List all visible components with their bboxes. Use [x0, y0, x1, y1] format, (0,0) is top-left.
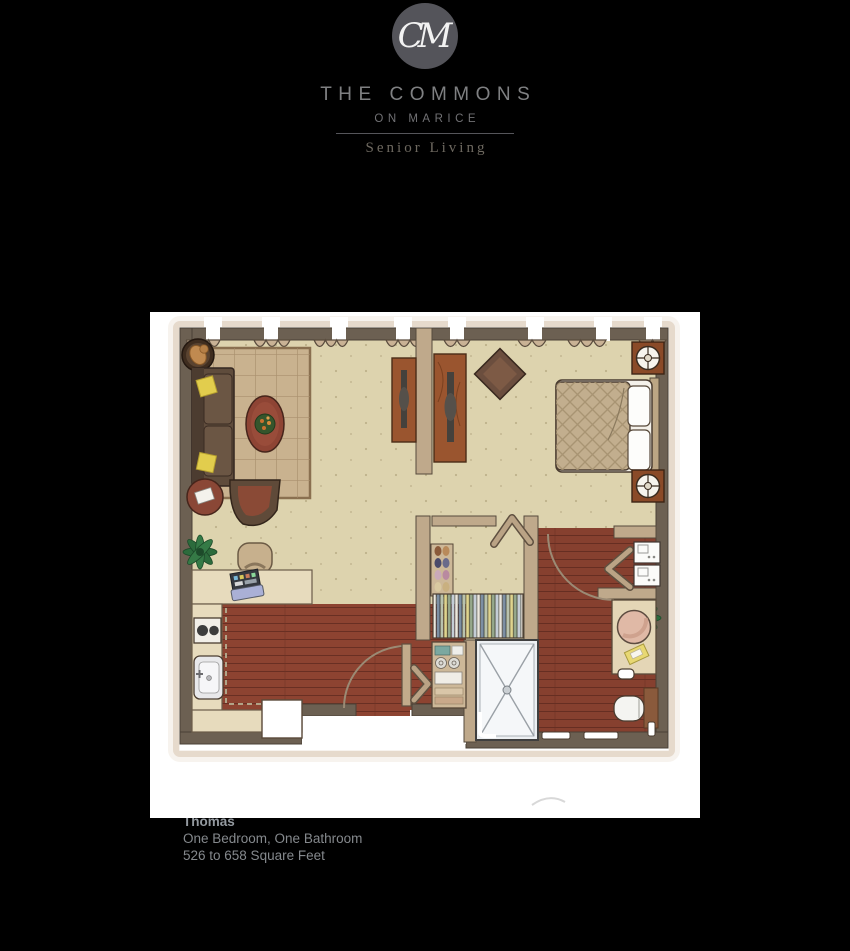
entry-alcove [302, 716, 466, 746]
nightstand-icon [632, 342, 664, 374]
plant-icon [183, 535, 217, 569]
bed-icon [556, 378, 659, 474]
shower-icon [476, 640, 538, 740]
unit-square-feet: 526 to 658 Square Feet [183, 847, 362, 864]
sink-icon [194, 656, 223, 699]
hanging-clothes-icon [433, 594, 523, 638]
desk-chair-icon [238, 543, 272, 573]
table-lamp-icon [637, 347, 660, 370]
cooktop-icon [194, 618, 221, 643]
media-console-bedroom-icon [434, 354, 466, 462]
refrigerator-icon [262, 700, 302, 738]
shoe-rack-icon [431, 544, 453, 596]
floor-plan-card [150, 312, 700, 818]
vanity-icon [612, 600, 656, 679]
pillow-icon [628, 430, 650, 470]
sofa-icon [192, 368, 234, 486]
brand-divider [336, 133, 514, 134]
media-console-living-icon [392, 358, 416, 442]
nightstand-icon [632, 470, 664, 502]
entry-door-icon [402, 644, 411, 706]
logo-monogram-icon: CM [398, 16, 453, 56]
pillow-icon [628, 386, 650, 426]
table-lamp-icon [637, 475, 660, 498]
unit-bed-bath: One Bedroom, One Bathroom [183, 830, 362, 847]
brand-header: CM THE COMMONS ON MARICE Senior Living [0, 0, 850, 157]
floor-plan [150, 312, 700, 818]
stool-icon [618, 669, 634, 679]
side-table-icon [187, 479, 223, 515]
brand-tagline: Senior Living [0, 140, 850, 157]
logo-badge: CM [392, 3, 458, 69]
brand-subname: ON MARICE [0, 113, 850, 125]
pillow-icon [196, 453, 216, 473]
page-background: CM THE COMMONS ON MARICE Senior Living T… [0, 0, 850, 951]
unit-caption: Thomas One Bedroom, One Bathroom 526 to … [183, 813, 362, 864]
linen-shelf-icon [432, 642, 466, 708]
laptop-icon [228, 569, 264, 601]
brand-name: THE COMMONS [0, 84, 850, 106]
dog-bed-icon [182, 339, 214, 371]
coffee-table-icon [246, 396, 284, 452]
